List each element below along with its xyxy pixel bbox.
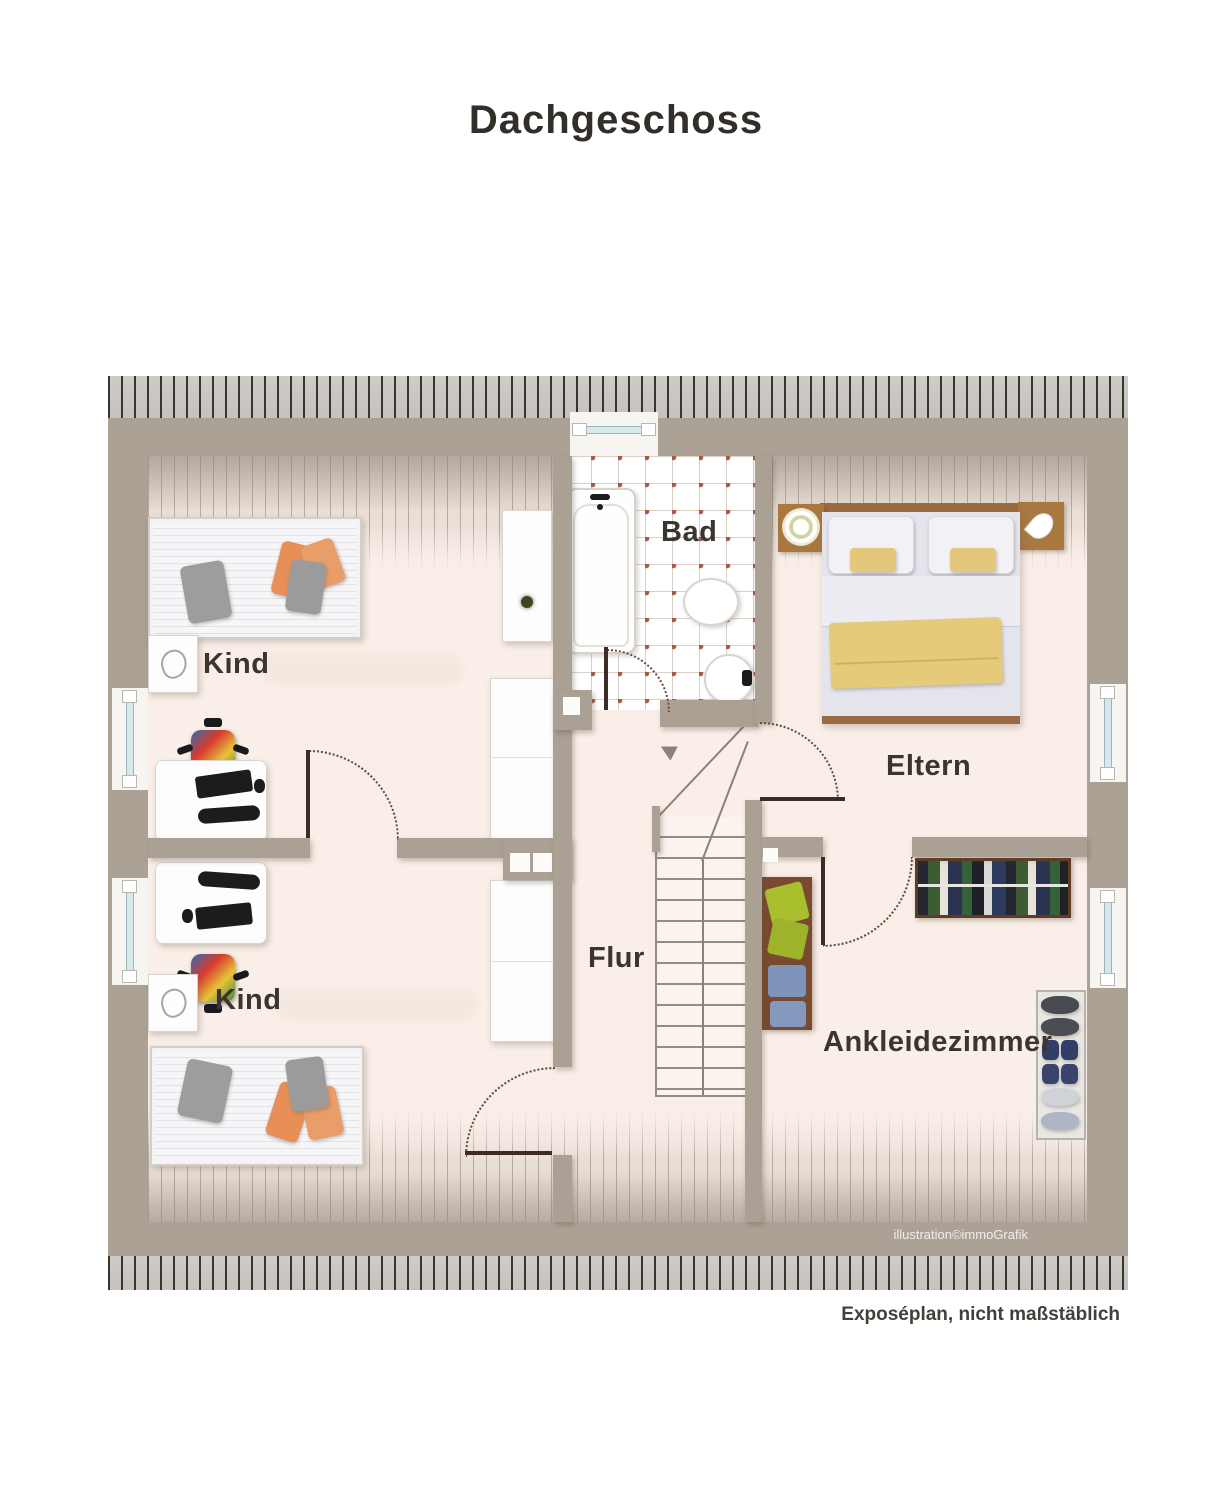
erased-text-patch xyxy=(274,988,479,1022)
blanket-gray xyxy=(285,559,328,616)
window-eltern xyxy=(1090,684,1126,782)
wardrobe-seam xyxy=(491,757,554,758)
bed-kind1 xyxy=(148,517,362,639)
sink xyxy=(704,654,754,704)
wardrobe-kind2 xyxy=(490,880,555,1042)
nightstand-kind1 xyxy=(148,635,198,693)
decor-plate-icon xyxy=(782,508,820,546)
blanket-gray xyxy=(285,1056,330,1113)
wall-bath-right xyxy=(755,456,772,723)
wall-eltern-ankleide-right xyxy=(912,837,1087,857)
bed-footboard xyxy=(822,716,1020,724)
cushion-yellow xyxy=(850,548,896,572)
floorplan: Kind Kind Bad Eltern Flur Ankleidezimmer… xyxy=(108,376,1128,1290)
bed-kind2 xyxy=(150,1046,364,1166)
keyboard-icon xyxy=(195,769,254,799)
wall-niche xyxy=(510,853,530,872)
wall-niche xyxy=(763,848,778,862)
window-kind2 xyxy=(112,878,148,985)
wall-center-vertical-stub xyxy=(553,1155,572,1222)
nightstand-eltern-left xyxy=(778,504,824,552)
window-glass xyxy=(126,697,134,781)
keyboard-icon xyxy=(195,902,253,930)
window-handle xyxy=(122,775,137,788)
window-handle xyxy=(1100,890,1115,903)
wall-niche xyxy=(533,853,552,872)
door-kind1 xyxy=(306,750,310,838)
clothes-rod xyxy=(918,884,1068,887)
window-ankleide xyxy=(1090,888,1126,988)
wall-kind-divider-left xyxy=(148,838,310,858)
window-kind1 xyxy=(112,688,148,790)
clothes-rail xyxy=(915,858,1071,918)
desk-kind2 xyxy=(155,862,267,944)
room-label-ankleidezimmer: Ankleidezimmer xyxy=(823,1026,1052,1059)
wall-eltern-ankleide-left xyxy=(762,837,823,857)
room-label-kind1: Kind xyxy=(203,648,269,681)
shoes xyxy=(1061,1040,1078,1060)
wall-stair-left-stub xyxy=(652,806,660,852)
shoes xyxy=(1041,1088,1079,1106)
room-label-flur: Flur xyxy=(588,942,645,975)
shoes xyxy=(1041,996,1079,1014)
bed-eltern xyxy=(822,512,1020,724)
bed-headboard xyxy=(820,503,1022,512)
shelf xyxy=(762,877,812,1030)
window-handle xyxy=(641,423,656,436)
window-handle xyxy=(572,423,587,436)
folded-clothes-blue xyxy=(768,965,806,997)
door-ankleide xyxy=(821,857,825,945)
toilet xyxy=(683,578,739,626)
wall-niche xyxy=(563,697,580,715)
room-label-bad: Bad xyxy=(661,516,717,549)
window-handle xyxy=(122,880,137,893)
exterior-wall-right xyxy=(1087,418,1128,1222)
bathtub-drain-icon xyxy=(597,504,603,510)
room-label-kind2: Kind xyxy=(215,984,281,1017)
decor-leaf-icon xyxy=(1024,508,1059,544)
shoes xyxy=(1061,1064,1078,1084)
window-glass xyxy=(1104,693,1112,773)
erased-text-patch xyxy=(260,652,465,686)
door-kind2 xyxy=(465,1151,552,1155)
page-title: Dachgeschoss xyxy=(0,98,1232,143)
bathtub-faucet-icon xyxy=(590,494,610,500)
sink-faucet-icon xyxy=(742,670,752,686)
lamp-icon xyxy=(157,985,191,1020)
footnote: Exposéplan, nicht maßstäblich xyxy=(841,1304,1120,1326)
door-eltern xyxy=(760,797,845,801)
window-handle xyxy=(1100,686,1115,699)
wall-stair-right xyxy=(745,800,762,1222)
window-handle xyxy=(122,970,137,983)
room-label-eltern: Eltern xyxy=(886,750,971,783)
chair-headrest xyxy=(204,718,222,727)
blanket-yellow xyxy=(829,617,1003,689)
lamp-icon xyxy=(157,646,191,681)
exterior-wall-left xyxy=(108,418,148,1222)
roof-hatch-bottom xyxy=(108,1256,1128,1290)
window-bad xyxy=(570,412,658,456)
bathtub xyxy=(566,488,636,654)
bathtub-basin xyxy=(573,504,629,647)
window-handle xyxy=(1100,973,1115,986)
stair-stringer xyxy=(702,860,704,1095)
mouse-icon xyxy=(182,909,193,923)
cushion-yellow xyxy=(950,548,996,572)
wall-bath-bottom xyxy=(660,700,758,727)
window-glass xyxy=(126,887,134,976)
window-glass xyxy=(579,426,649,434)
folded-clothes-green xyxy=(767,918,810,961)
shoe-rack xyxy=(1036,990,1086,1140)
window-handle xyxy=(1100,767,1115,780)
mouse-icon xyxy=(254,779,265,793)
wall-bath-corner-block xyxy=(553,690,592,730)
door-bad xyxy=(604,647,608,710)
monitor-icon xyxy=(198,805,261,824)
illustration-credit: illustration©immoGrafik xyxy=(728,1227,1028,1242)
folded-clothes-blue xyxy=(770,1001,806,1027)
nightstand-eltern-right xyxy=(1018,502,1064,550)
window-handle xyxy=(122,690,137,703)
blanket-fold xyxy=(834,657,998,665)
desk-kind1 xyxy=(155,760,267,842)
shoes xyxy=(1042,1064,1059,1084)
shoes xyxy=(1041,1112,1079,1130)
floorplan-page: Dachgeschoss xyxy=(0,0,1232,1500)
window-glass xyxy=(1104,897,1112,979)
wardrobe-seam xyxy=(491,961,554,962)
wall-kind-divider-right xyxy=(397,838,503,858)
monitor-icon xyxy=(198,871,261,890)
wall-center-vertical xyxy=(553,456,572,1067)
cabinet-kind1 xyxy=(502,510,552,642)
wardrobe-kind1 xyxy=(490,678,555,839)
cabinet-knob xyxy=(521,596,533,608)
nightstand-kind2 xyxy=(148,974,198,1032)
